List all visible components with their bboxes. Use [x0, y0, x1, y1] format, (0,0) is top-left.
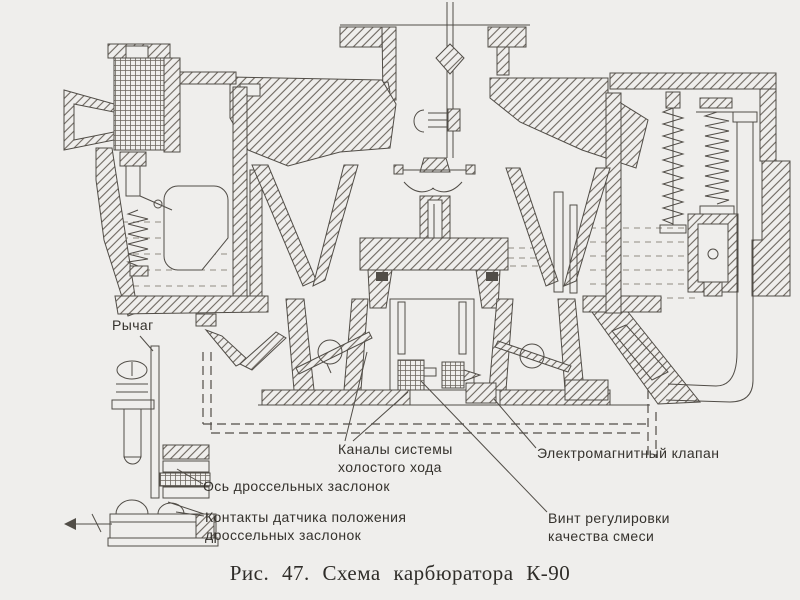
label-solenoid-valve: Электромагнитный клапан	[537, 445, 719, 463]
figure-caption: Рис. 47. Схема карбюратора К-90	[0, 561, 800, 586]
air-valve-left	[206, 330, 286, 370]
label-sensor-contacts: Контакты датчика положения дроссельных з…	[205, 509, 406, 544]
solenoid-body	[688, 214, 738, 296]
air-horn-cover	[230, 25, 648, 168]
label-throttle-axis: Ось дроссельных заслонок	[203, 478, 390, 496]
fuel-filter	[108, 44, 180, 152]
lever-plate	[151, 346, 159, 498]
float	[164, 186, 228, 270]
main-jet-block	[360, 238, 508, 308]
adjusting-bolt	[112, 361, 154, 464]
solenoid-springs	[660, 92, 736, 233]
throttle-body	[258, 299, 650, 405]
fuel-inlet-fitting	[64, 90, 114, 150]
label-lever: Рычаг	[112, 317, 154, 335]
label-mixture-screw: Винт регулировки качества смеси	[548, 510, 670, 545]
position-sensor-contacts	[64, 500, 218, 546]
figure-page: Рычаг Ось дроссельных заслонок Контакты …	[0, 0, 800, 600]
label-idle-channels: Каналы системы холостого хода	[338, 441, 453, 476]
